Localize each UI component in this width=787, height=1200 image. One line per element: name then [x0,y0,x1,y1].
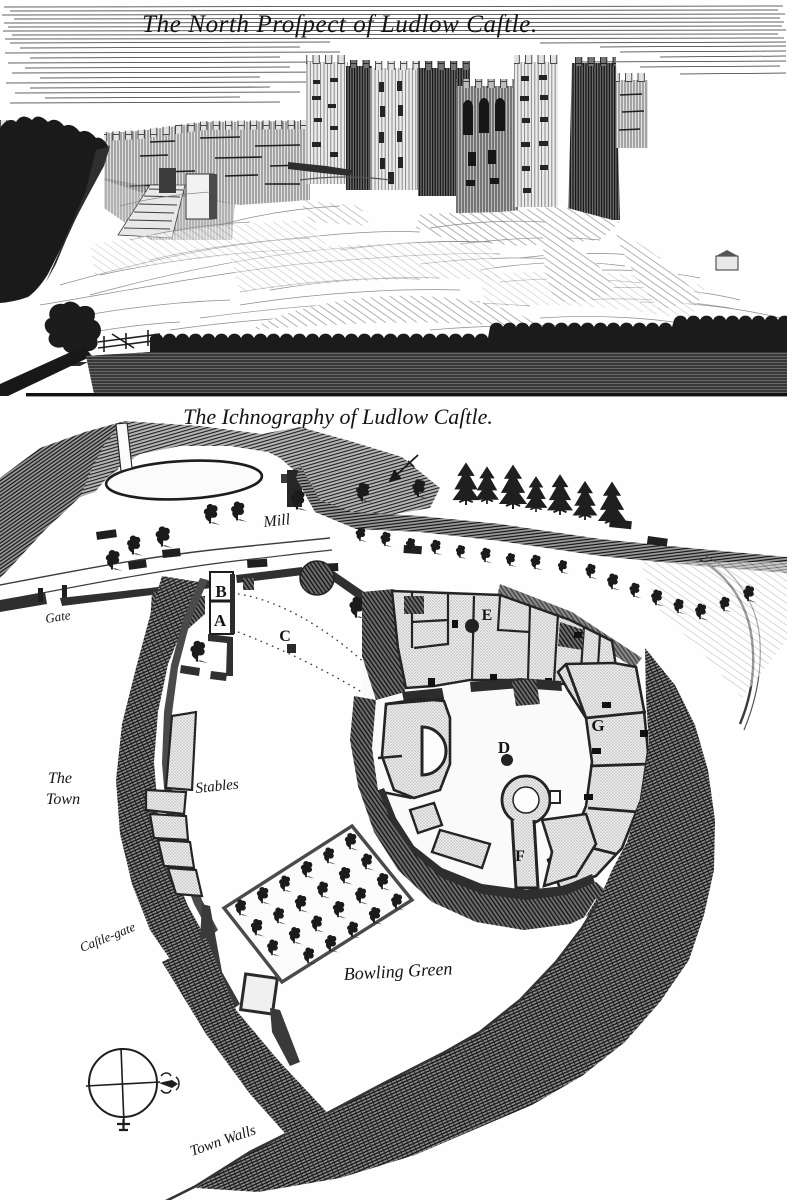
svg-text:Mill: Mill [262,511,292,531]
svg-text:The: The [48,770,72,787]
svg-text:The Ichnography of Ludlow Caſt: The Ichnography of Ludlow Caſtle. [183,404,493,429]
svg-text:F: F [515,848,525,865]
svg-text:The North Proſpect of Ludlow C: The North Proſpect of Ludlow Caſtle. [142,11,538,38]
svg-text:Town: Town [46,791,80,808]
svg-text:B: B [215,582,226,601]
svg-text:G: G [591,716,604,735]
svg-text:E: E [482,607,493,624]
svg-text:A: A [214,611,227,630]
svg-text:C: C [279,628,291,645]
